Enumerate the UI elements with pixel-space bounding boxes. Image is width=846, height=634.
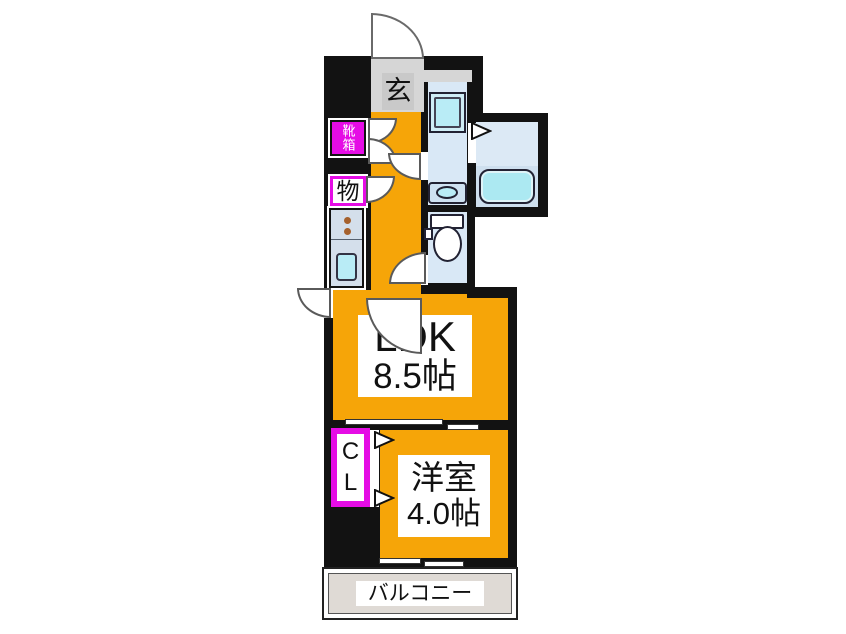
balcony-label-box: バルコニー — [356, 581, 484, 606]
shoebox-label: 靴箱 — [342, 124, 355, 152]
balcony-window-panel-2 — [424, 561, 464, 567]
western-room-label-box: 洋室 4.0帖 — [398, 455, 490, 537]
kitchen-counter — [329, 208, 364, 288]
bathroom-folding-door-icon — [471, 122, 492, 140]
front-door-arc — [371, 13, 424, 59]
closet-label-line1: C — [342, 440, 359, 464]
toilet-flush-handle — [424, 228, 433, 240]
kitchen-counter-divider — [331, 239, 362, 240]
kitchen-sink-icon — [336, 253, 357, 281]
stove-burner-dot-1 — [344, 217, 351, 224]
service-door-arc — [297, 288, 331, 318]
closet: C L — [331, 428, 370, 507]
closet-folding-door-icon-top — [374, 431, 395, 449]
washer-pan-inner — [434, 97, 461, 128]
wash-basin-icon — [428, 182, 467, 204]
ldk-size: 8.5帖 — [373, 358, 457, 397]
wash-basin-bowl — [436, 186, 458, 199]
bathtub-icon — [479, 169, 535, 204]
entrance-label: 玄 — [385, 78, 412, 105]
stove-burner-dot-2 — [344, 228, 351, 235]
washroom-door-opening — [421, 152, 428, 180]
toilet-bowl-icon — [433, 226, 462, 262]
ldk-sliding-door-panel-1 — [345, 419, 443, 425]
western-room-size: 4.0帖 — [407, 496, 481, 532]
floorplan: 玄 LDK 8.5帖 洋室 4.0帖 C L バルコニー 靴箱 — [0, 0, 846, 634]
washer-pan-icon — [429, 92, 466, 133]
closet-folding-door-icon-bottom — [374, 489, 395, 507]
balcony-window-panel-1 — [379, 558, 421, 564]
storage-cabinet: 物 — [330, 176, 366, 206]
entrance-floor-step — [424, 70, 472, 82]
shoebox: 靴箱 — [330, 120, 366, 156]
entrance-label-box: 玄 — [382, 73, 414, 110]
balcony-label: バルコニー — [368, 583, 473, 604]
closet-label-line2: L — [344, 471, 357, 495]
western-room-name: 洋室 — [411, 460, 477, 496]
storage-label: 物 — [337, 180, 360, 203]
ldk-sliding-door-panel-2 — [447, 424, 479, 430]
